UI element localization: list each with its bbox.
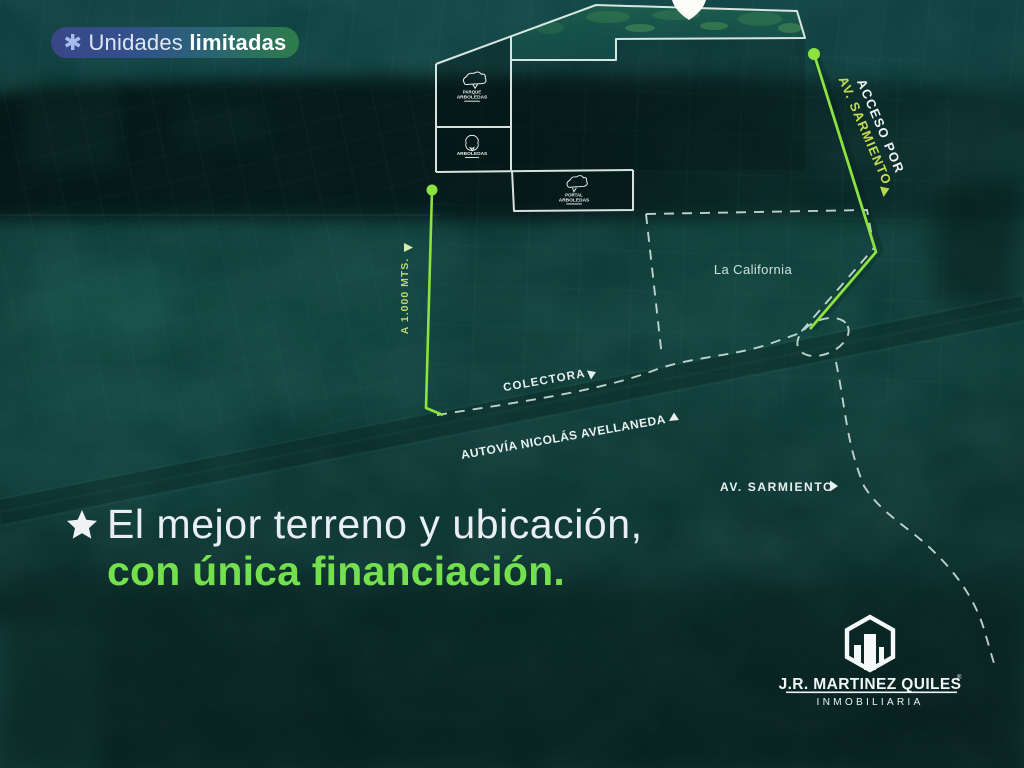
svg-text:INMOBILIARIA: INMOBILIARIA [817, 697, 924, 708]
svg-text:ARBOLEDAS: ARBOLEDAS [559, 198, 590, 204]
svg-text:ARBOLEDAS: ARBOLEDAS [457, 151, 488, 157]
svg-text:ARBOLEDAS: ARBOLEDAS [457, 95, 488, 101]
svg-text:PORTAL: PORTAL [565, 192, 583, 197]
svg-text:J.R. MARTINEZ QUILES: J.R. MARTINEZ QUILES [779, 676, 962, 693]
svg-text:A 1.000 MTS.: A 1.000 MTS. [399, 258, 411, 334]
svg-text:AV. SARMIENTO: AV. SARMIENTO [720, 480, 834, 494]
svg-text:®: ® [957, 674, 962, 681]
svg-text:La California: La California [714, 262, 793, 277]
svg-text:PARQUE: PARQUE [463, 90, 481, 95]
